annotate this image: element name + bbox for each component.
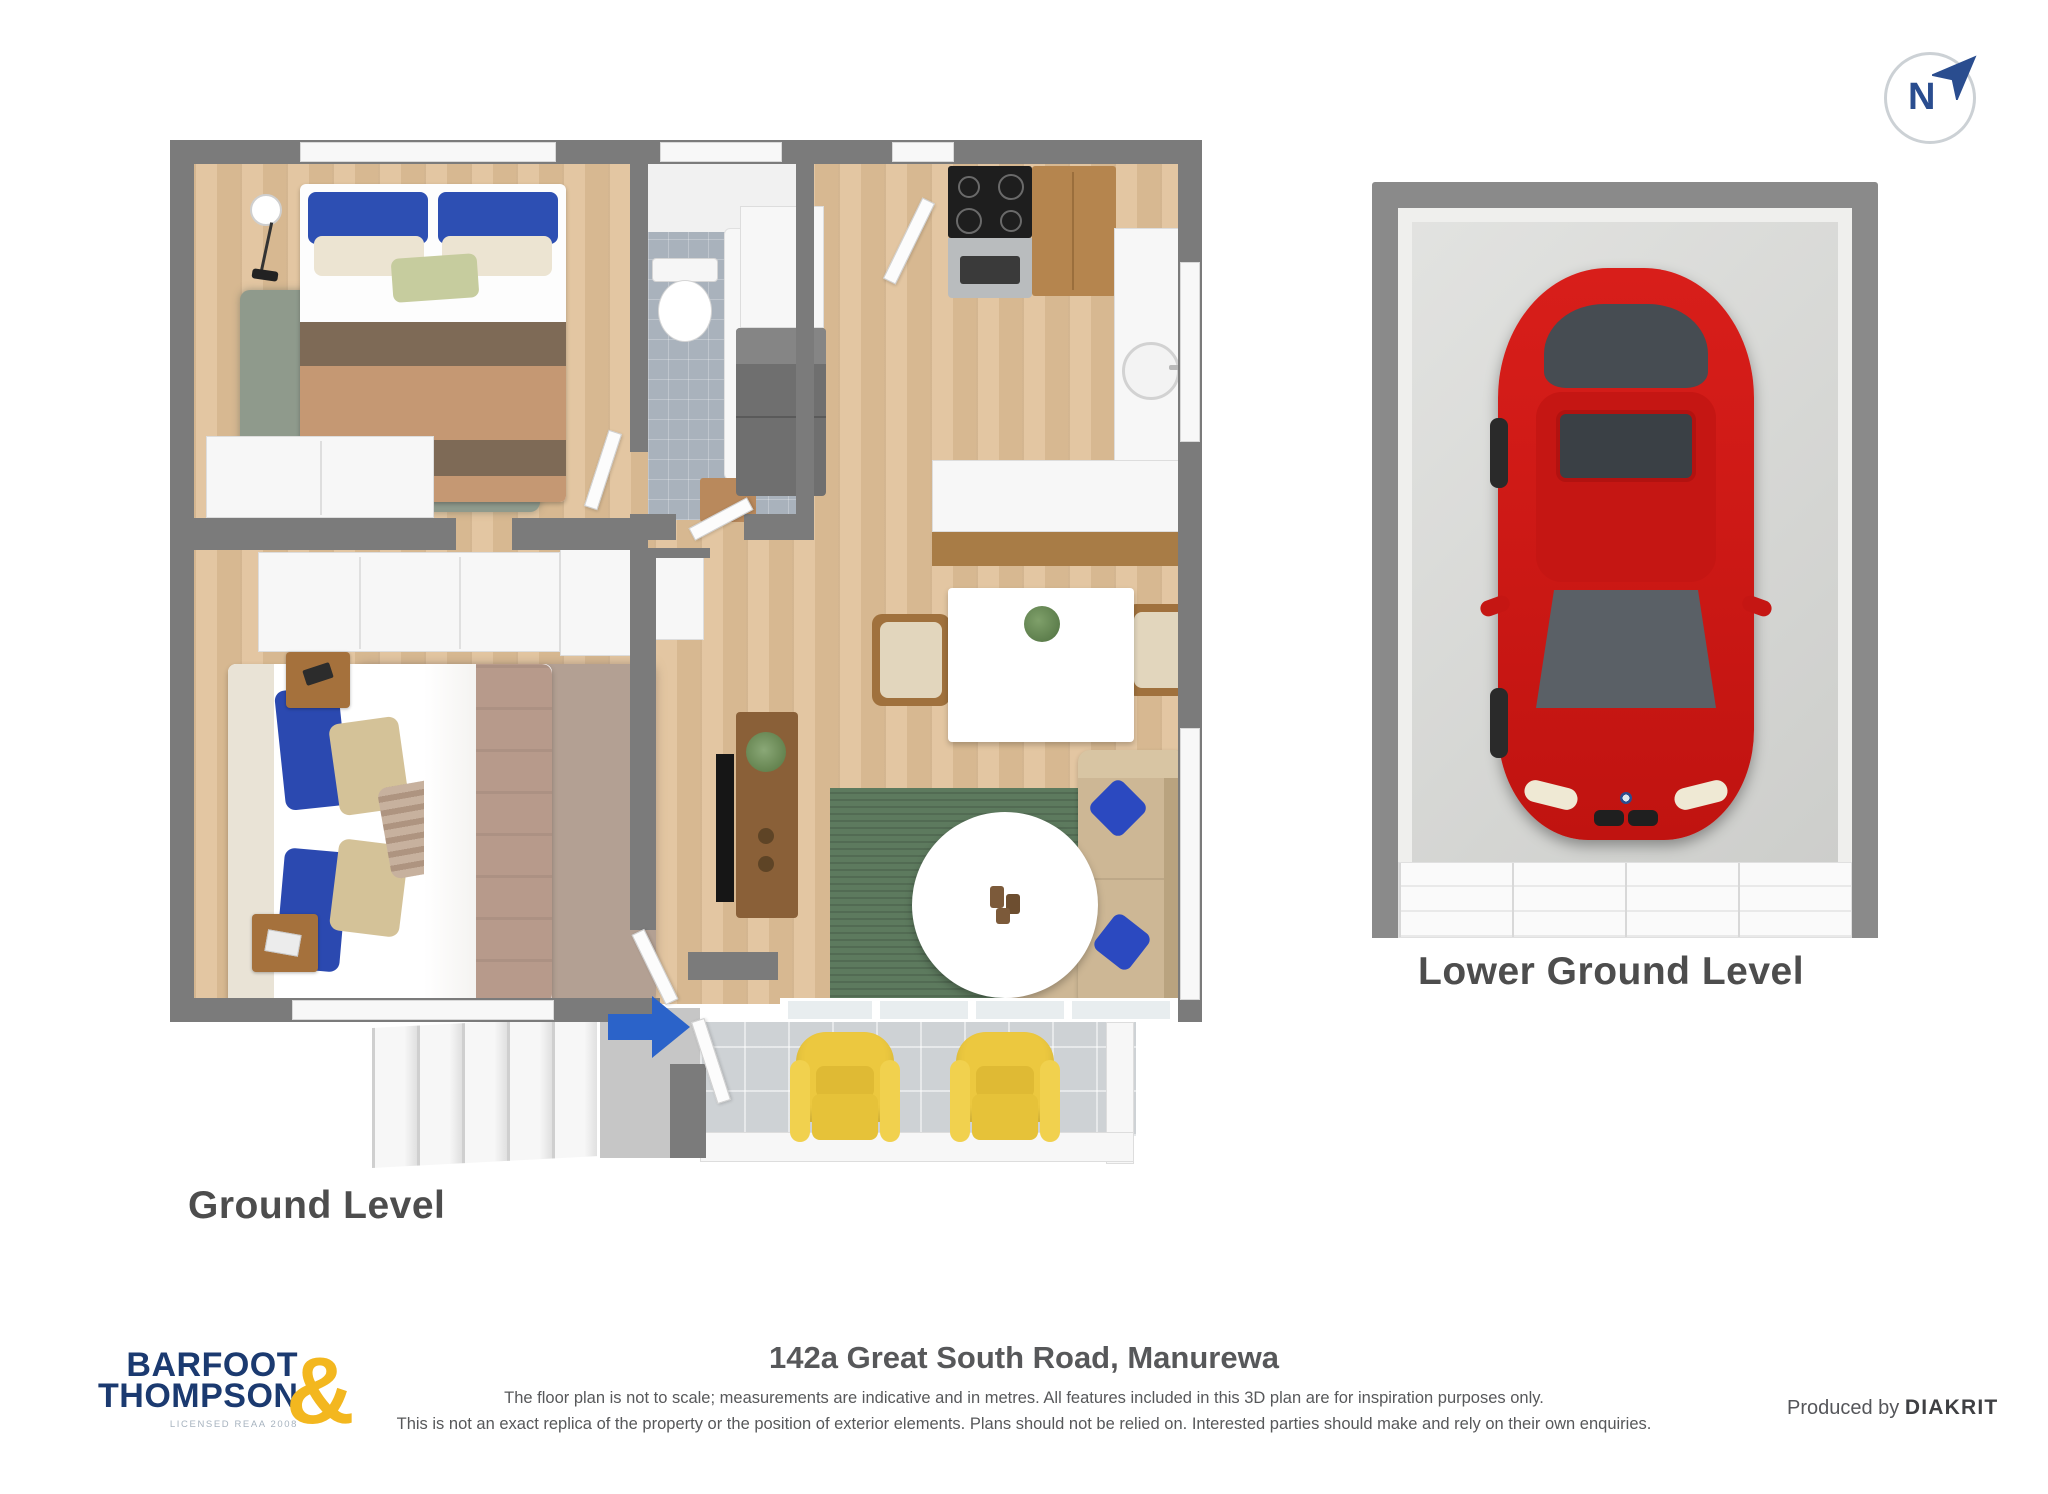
car-rear-window bbox=[1544, 304, 1708, 388]
red-car bbox=[1498, 268, 1754, 840]
garage-door-jamb bbox=[1852, 862, 1878, 938]
car-sunroof bbox=[1556, 410, 1696, 482]
compass-arrow-icon bbox=[1932, 46, 1986, 100]
car-grille bbox=[1594, 810, 1624, 826]
disclaimer-line-1: The floor plan is not to scale; measurem… bbox=[0, 1389, 2048, 1408]
produced-by: Produced by DIAKRIT bbox=[1787, 1396, 1998, 1420]
garage-door-jamb bbox=[1372, 862, 1398, 938]
car-badge bbox=[1620, 792, 1632, 804]
garage-door bbox=[1398, 862, 1852, 938]
car-wheel bbox=[1490, 418, 1508, 488]
car-windshield bbox=[1536, 590, 1716, 708]
producer-name: DIAKRIT bbox=[1905, 1396, 1999, 1419]
disclaimer-line-2: This is not an exact replica of the prop… bbox=[0, 1415, 2048, 1434]
produced-by-prefix: Produced by bbox=[1787, 1397, 1899, 1419]
lower-ground-level-label: Lower Ground Level bbox=[1418, 950, 1804, 994]
ground-level-label: Ground Level bbox=[188, 1184, 445, 1228]
compass: N bbox=[1884, 52, 1984, 152]
floorplan-page: N bbox=[0, 0, 2048, 1494]
car-headlight bbox=[1522, 778, 1580, 812]
car-wheel bbox=[1490, 688, 1508, 758]
car-grille bbox=[1628, 810, 1658, 826]
car-headlight bbox=[1672, 778, 1730, 812]
property-address: 142a Great South Road, Manurewa bbox=[0, 1340, 2048, 1376]
lower-ground-plan bbox=[0, 0, 2048, 1494]
